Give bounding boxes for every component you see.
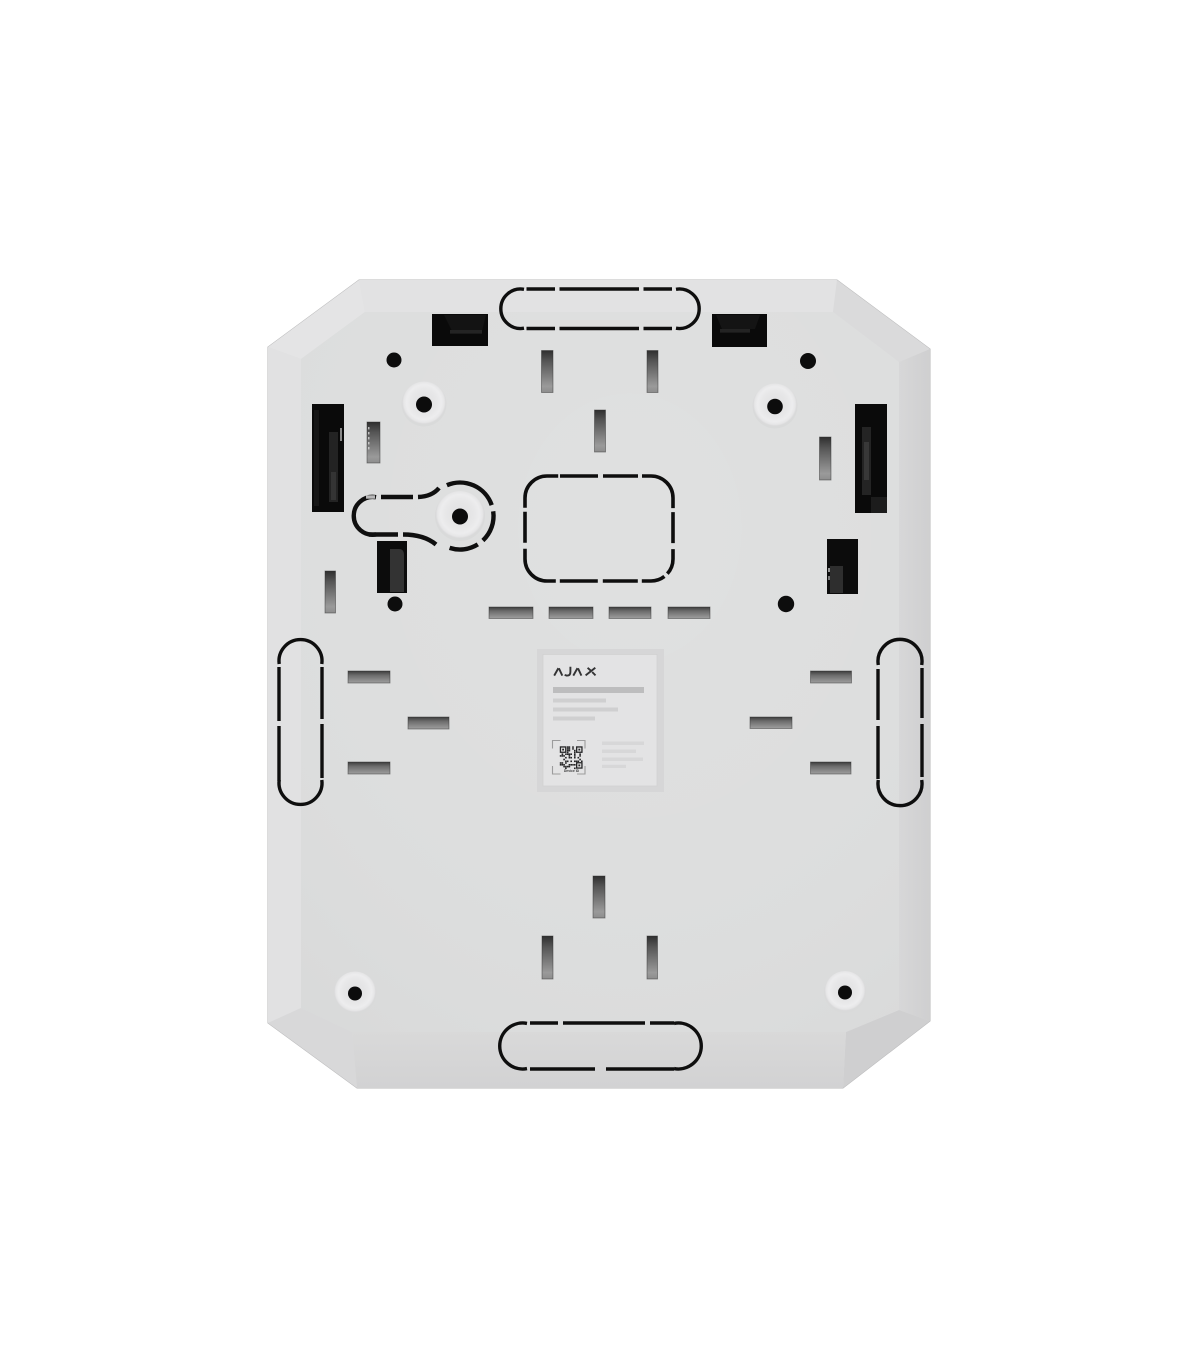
svg-text:Device ID: Device ID [564, 769, 580, 773]
